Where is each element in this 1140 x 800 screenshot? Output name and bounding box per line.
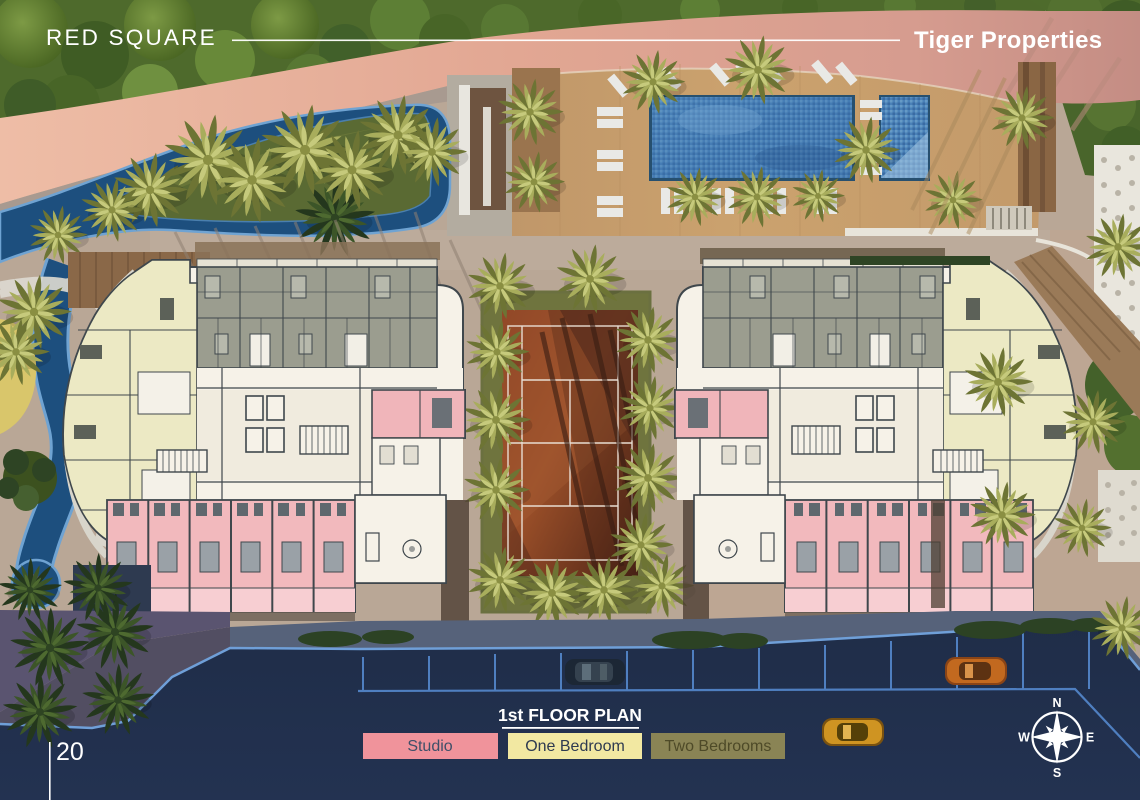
svg-text:E: E	[1086, 731, 1094, 745]
svg-text:One Bedroom: One Bedroom	[525, 738, 625, 755]
svg-text:20: 20	[56, 738, 84, 766]
svg-text:RED SQUARE: RED SQUARE	[46, 25, 217, 50]
svg-text:W: W	[1018, 731, 1030, 745]
svg-text:Two Bedrooms: Two Bedrooms	[665, 738, 772, 755]
svg-text:S: S	[1053, 766, 1061, 780]
svg-text:1st FLOOR PLAN: 1st FLOOR PLAN	[498, 705, 642, 725]
svg-text:N: N	[1052, 696, 1061, 710]
svg-text:Tiger Properties: Tiger Properties	[914, 27, 1102, 54]
svg-text:Studio: Studio	[407, 738, 452, 755]
